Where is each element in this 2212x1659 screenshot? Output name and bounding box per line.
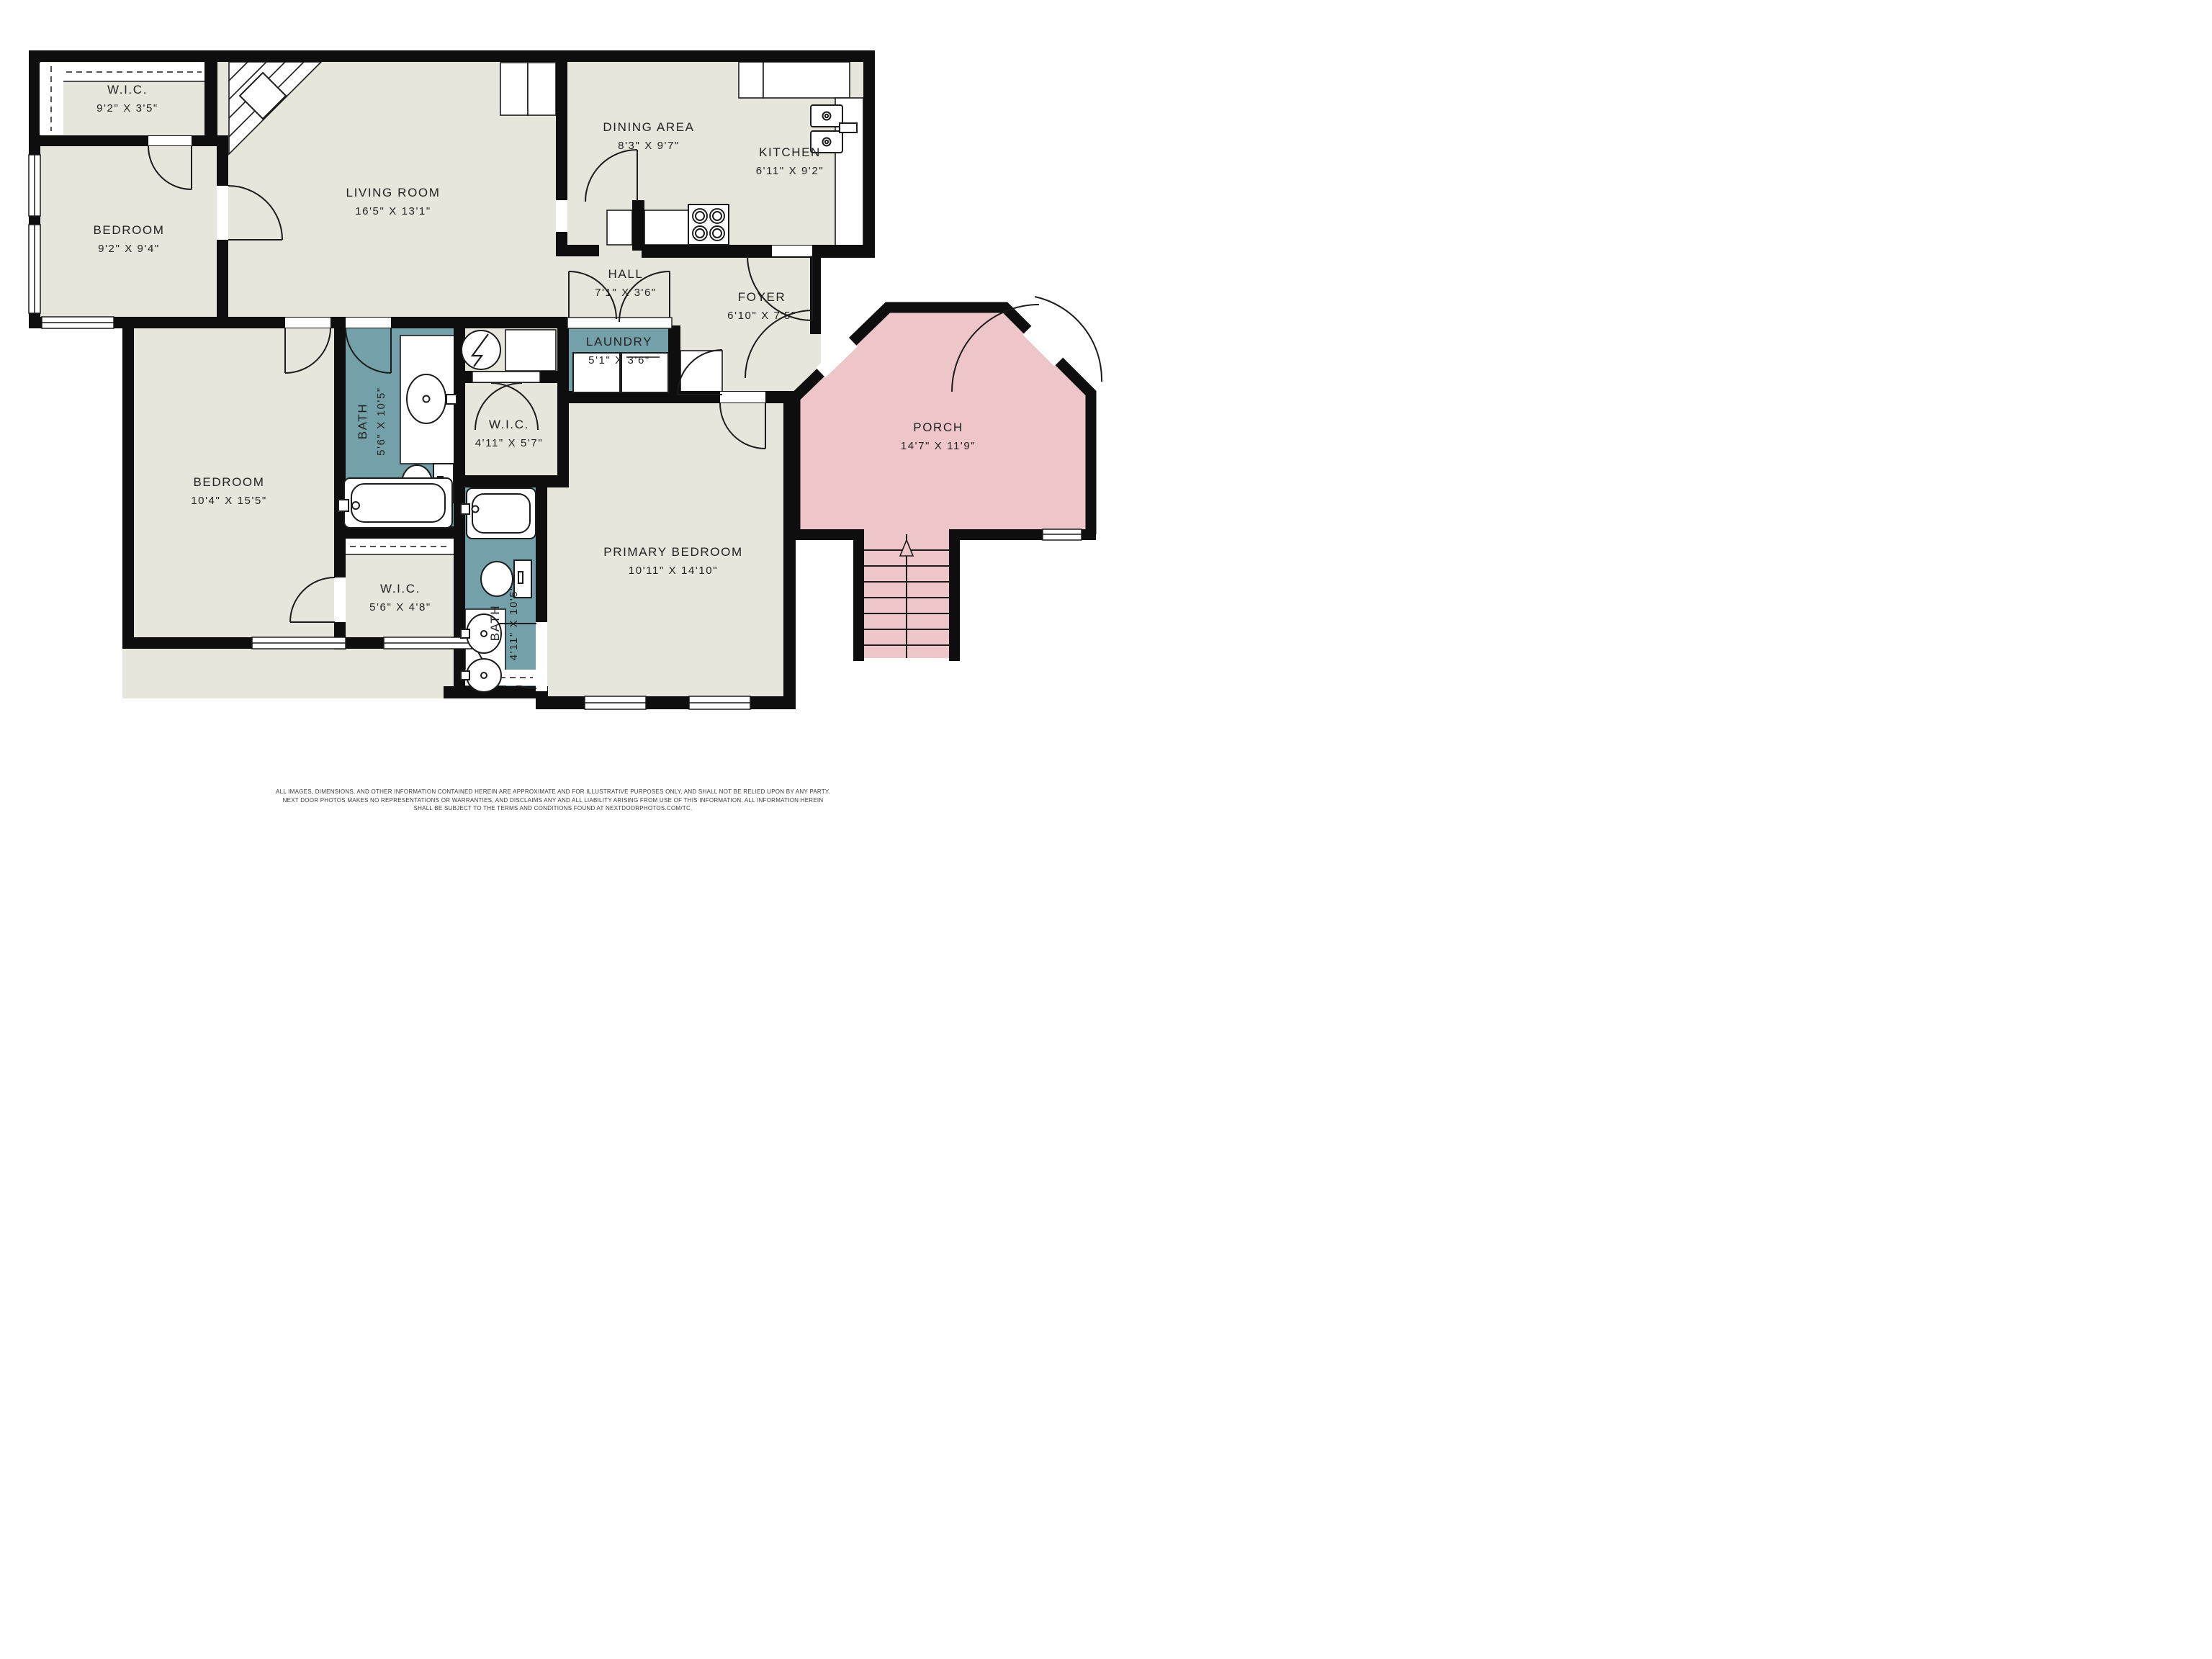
floor-plan: W.I.C. 9'2" X 3'5" BEDROOM 9'2" X 9'4" L… (0, 0, 1106, 829)
room-label-living-room: LIVING ROOM 16'5" X 13'1" (346, 186, 441, 217)
kitchen-cabinet (644, 210, 688, 245)
window (42, 317, 114, 328)
room-label-laundry: LAUNDRY 5'1" X 3'6" (586, 335, 652, 367)
room-label-hall: HALL 7'1" X 3'6" (595, 267, 657, 299)
room-label-wic-middle: W.I.C. 4'11" X 5'7" (475, 418, 544, 449)
bathtub-icon (461, 488, 536, 539)
bathtub-icon (338, 478, 452, 528)
window (29, 155, 40, 216)
room-label-foyer: FOYER 6'10" X 7'5" (727, 290, 796, 322)
kitchen-counter (763, 62, 850, 98)
room-label-bath-lower: BATH 4'11" X 10'5" (488, 585, 520, 660)
room-label-bath-upper: BATH 5'6" X 10'5" (356, 387, 387, 456)
window (384, 637, 472, 649)
window (29, 225, 40, 313)
utility-shelf (505, 330, 556, 371)
room-label-bedroom-left: BEDROOM 10'4" X 15'5" (191, 475, 267, 507)
window (252, 637, 346, 649)
room-label-porch: PORCH 14'7" X 11'9" (901, 421, 976, 452)
floor-plan-drawing (0, 0, 1106, 829)
stove-icon (688, 204, 729, 245)
window (689, 696, 750, 709)
room-label-wic-lower: W.I.C. 5'6" X 4'8" (369, 582, 431, 613)
closet-box (500, 63, 528, 115)
water-heater-icon (462, 331, 500, 369)
disclaimer-line-2: NEXT DOOR PHOTOS MAKES NO REPRESENTATION… (0, 796, 1106, 805)
room-label-kitchen: KITCHEN 6'11" X 9'2" (756, 145, 824, 177)
window (585, 696, 646, 709)
window (1043, 529, 1082, 540)
kitchen-counter (739, 62, 763, 98)
closet-box (528, 63, 556, 115)
room-label-bedroom-top-left: BEDROOM 9'2" X 9'4" (93, 223, 164, 255)
foyer-closet (680, 351, 722, 392)
disclaimer-line-1: ALL IMAGES, DIMENSIONS, AND OTHER INFORM… (0, 788, 1106, 796)
disclaimer-text: ALL IMAGES, DIMENSIONS, AND OTHER INFORM… (0, 788, 1106, 813)
room-label-wic-top: W.I.C. 9'2" X 3'5" (96, 83, 158, 114)
kitchen-cabinet (607, 210, 632, 245)
disclaimer-line-3: SHALL BE SUBJECT TO THE TERMS AND CONDIT… (0, 804, 1106, 813)
room-label-primary-bedroom: PRIMARY BEDROOM 10'11" X 14'10" (603, 545, 742, 577)
room-label-dining-area: DINING AREA 8'3" X 9'7" (603, 120, 694, 152)
